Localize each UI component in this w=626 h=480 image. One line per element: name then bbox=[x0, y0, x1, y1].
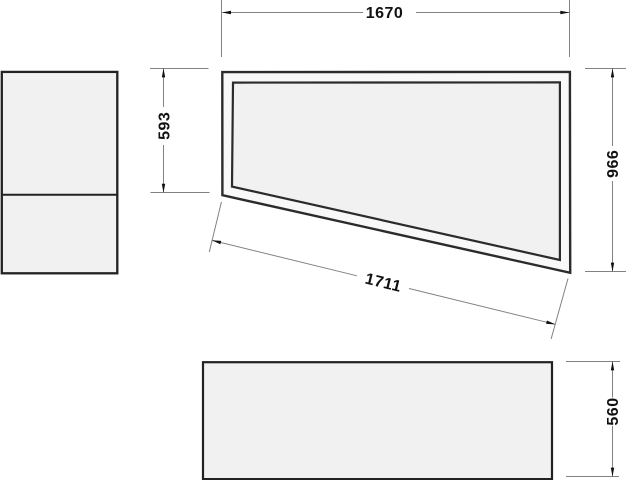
svg-text:560: 560 bbox=[605, 397, 622, 425]
svg-text:1670: 1670 bbox=[366, 5, 404, 22]
svg-text:966: 966 bbox=[605, 150, 622, 178]
svg-text:593: 593 bbox=[157, 112, 174, 140]
